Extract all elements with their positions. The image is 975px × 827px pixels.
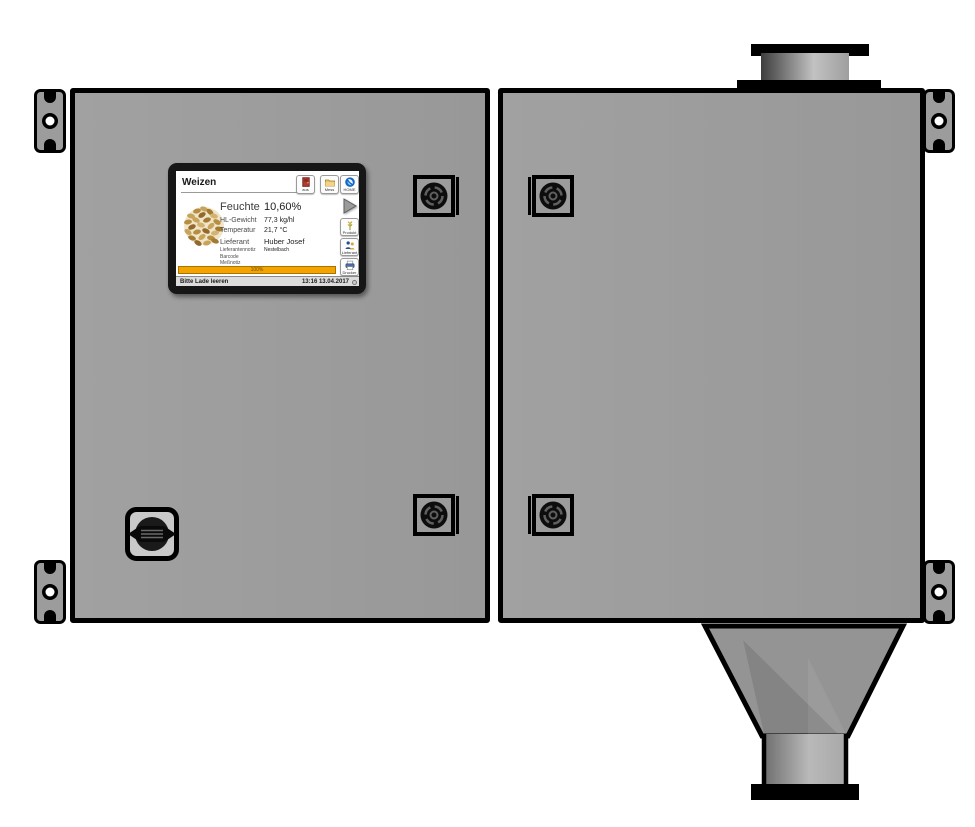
mounting-bracket-bottom-left <box>34 560 66 624</box>
mounting-bracket-bottom-right <box>923 560 955 624</box>
status-indicator-icon <box>352 280 357 285</box>
main-power-rotary-switch[interactable] <box>125 507 179 561</box>
status-bar: Bitte Lade leeren 13:16 13.04.2017 <box>176 276 359 286</box>
door-lock-top-right[interactable] <box>528 175 574 217</box>
door-lock-bottom-right[interactable] <box>528 494 574 536</box>
product-title: Weizen <box>182 177 216 188</box>
hmi-screen: Weizen aus Mess HOME <box>176 171 359 286</box>
mounting-bracket-top-right <box>923 89 955 153</box>
grain-analyser-cabinet: Weizen aus Mess HOME <box>0 0 975 827</box>
mounting-bracket-top-left <box>34 89 66 153</box>
outlet-funnel <box>688 618 928 813</box>
hmi-screen-bezel: Weizen aus Mess HOME <box>168 163 366 294</box>
status-message: Bitte Lade leeren <box>180 279 228 285</box>
printer-button-label: Drucker <box>342 271 356 275</box>
readings-panel: Feuchte 10,60% HL-Gewicht 77,3 kg/hl Tem… <box>220 171 356 267</box>
door-lock-bottom-left[interactable] <box>413 494 459 536</box>
cabinet-right-door <box>498 88 925 623</box>
progress-bar: 100% <box>178 266 336 274</box>
status-datetime: 13:16 13.04.2017 <box>302 279 349 285</box>
door-lock-top-left[interactable] <box>413 175 459 217</box>
